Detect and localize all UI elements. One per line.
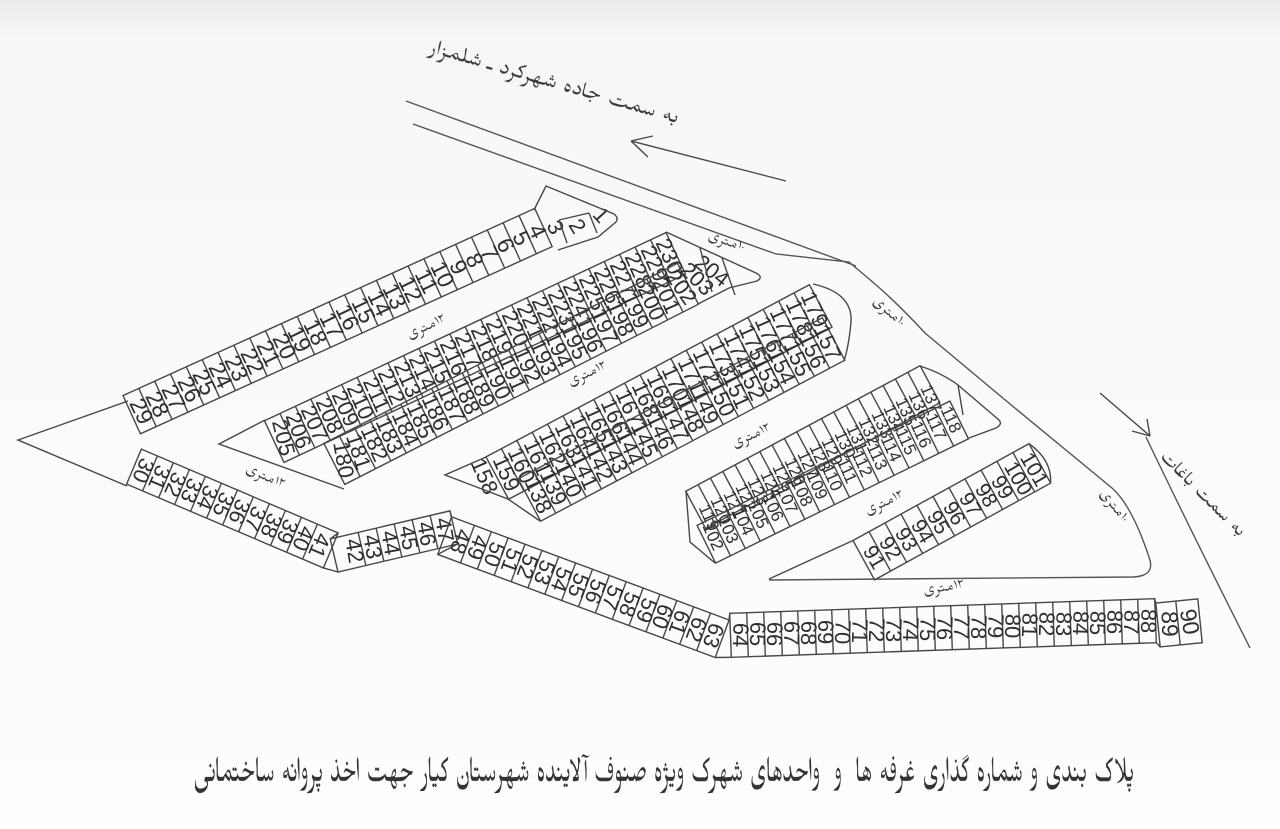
svg-text:90: 90	[1175, 607, 1205, 637]
